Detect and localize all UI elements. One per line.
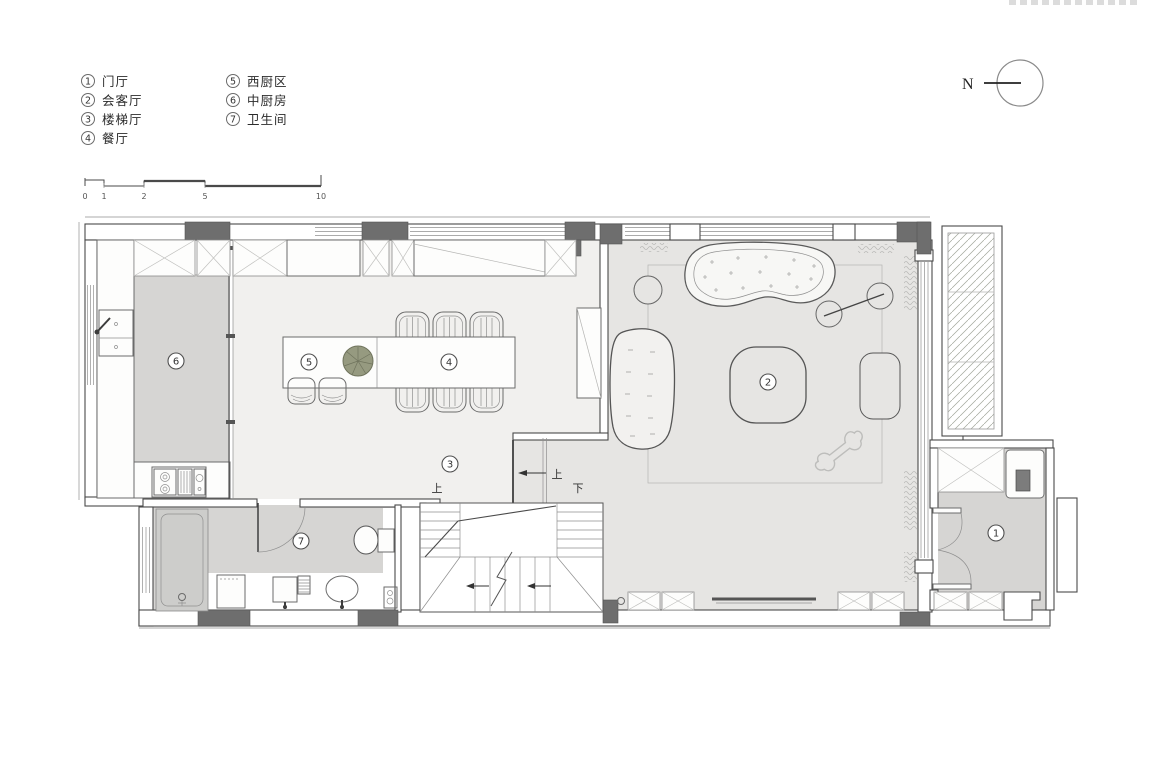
- cooktop: [152, 467, 206, 497]
- svg-text:卫生间: 卫生间: [247, 112, 288, 127]
- svg-text:2: 2: [141, 192, 146, 201]
- kitchen-floor: [134, 274, 230, 462]
- legend: 1 门厅 2 会客厅 3 楼梯厅 4 餐厅 5 西厨区 6 中厨房 7 卫生间: [82, 74, 288, 146]
- room-marker-7: 7: [293, 533, 309, 549]
- top-cabinets: [134, 240, 576, 276]
- side-table: [634, 276, 662, 304]
- legend-item-7: 7 卫生间: [227, 112, 288, 127]
- svg-text:4: 4: [446, 358, 452, 369]
- room-marker-4: 4: [441, 354, 457, 370]
- entry-stoop: [1057, 498, 1077, 592]
- svg-text:7: 7: [230, 115, 236, 126]
- kitchen-sink: [95, 310, 134, 356]
- toilet: [354, 526, 394, 554]
- legend-item-1: 1 门厅: [82, 74, 130, 89]
- svg-text:1: 1: [101, 192, 106, 201]
- island-dining-counter: [283, 337, 515, 388]
- room-marker-2: 2: [760, 374, 776, 390]
- legend-item-5: 5 西厨区: [227, 74, 288, 89]
- svg-text:5: 5: [202, 192, 207, 201]
- legend-item-2: 2 会客厅: [82, 93, 143, 108]
- legend-item-6: 6 中厨房: [227, 93, 288, 108]
- svg-text:5: 5: [230, 77, 236, 88]
- svg-text:会客厅: 会客厅: [102, 93, 143, 108]
- stair-down-label: 下: [573, 482, 584, 495]
- svg-text:2: 2: [765, 378, 771, 389]
- floor-plan-page: 1 2 3 4 5 6 7 上 上 下 1 门厅 2 会客厅: [0, 0, 1151, 777]
- svg-text:3: 3: [447, 460, 453, 471]
- stair-up-label-corridor: 上: [552, 468, 563, 481]
- svg-text:餐厅: 餐厅: [102, 131, 129, 146]
- kitchen-counter-left: [97, 240, 134, 498]
- washing-machine: [217, 575, 245, 608]
- room-marker-3: 3: [442, 456, 458, 472]
- room-marker-5: 5: [301, 354, 317, 370]
- shower: [156, 509, 208, 611]
- svg-text:5: 5: [306, 358, 312, 369]
- svg-text:1: 1: [993, 529, 999, 540]
- svg-text:西厨区: 西厨区: [247, 74, 288, 89]
- side-bench: [860, 353, 900, 419]
- svg-text:4: 4: [85, 134, 91, 145]
- floor-plan-drawing: 1 2 3 4 5 6 7 上 上 下 1 门厅 2 会客厅: [0, 0, 1151, 777]
- svg-text:10: 10: [316, 192, 326, 201]
- lounge-chaise: [610, 329, 674, 449]
- stair-up-label-left: 上: [432, 482, 443, 495]
- entry-bench: [1006, 450, 1044, 498]
- room-marker-1: 1: [988, 525, 1004, 541]
- svg-text:6: 6: [173, 357, 179, 368]
- staircase: [420, 503, 603, 612]
- svg-text:门厅: 门厅: [102, 74, 129, 89]
- svg-text:1: 1: [85, 77, 91, 88]
- svg-text:楼梯厅: 楼梯厅: [102, 112, 143, 127]
- room-marker-6: 6: [168, 353, 184, 369]
- legend-item-4: 4 餐厅: [82, 131, 130, 146]
- svg-text:7: 7: [298, 537, 304, 548]
- svg-text:3: 3: [85, 115, 91, 126]
- table-plant: [343, 346, 373, 376]
- scale-bar: 0 1 2 5 10: [82, 175, 326, 201]
- north-arrow: N: [962, 60, 1043, 106]
- north-label: N: [962, 76, 974, 93]
- svg-text:0: 0: [82, 192, 87, 201]
- svg-text:6: 6: [230, 96, 236, 107]
- legend-item-3: 3 楼梯厅: [82, 112, 143, 127]
- curved-sofa: [685, 242, 835, 306]
- watermark-remnant: [1009, 0, 1141, 5]
- svg-text:2: 2: [85, 96, 91, 107]
- exterior-trellis: [942, 226, 1002, 440]
- tall-cabinet: [577, 308, 601, 398]
- svg-text:中厨房: 中厨房: [247, 93, 288, 108]
